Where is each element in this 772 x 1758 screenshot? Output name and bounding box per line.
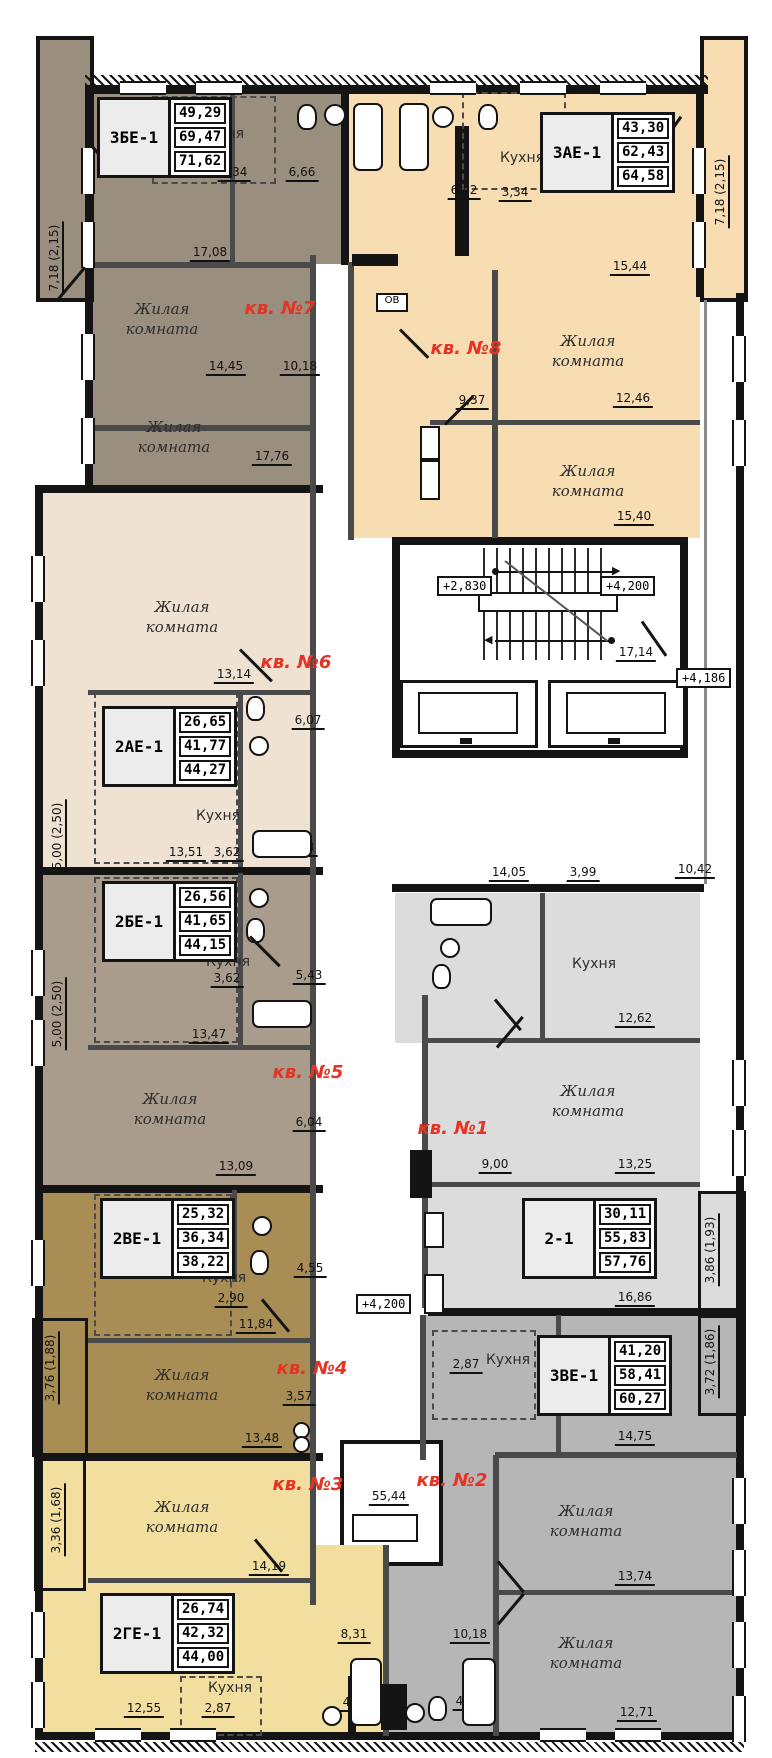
- balcony-dimension-label: 3,86 (1,93): [704, 1214, 720, 1287]
- room-label-living: Жилая комната: [538, 1634, 634, 1673]
- balcony-dimension-label: 7,18 (2,15): [48, 222, 64, 295]
- window: [430, 81, 476, 95]
- area-value: 64,58: [617, 166, 669, 187]
- dimension-label: 3,62: [211, 846, 244, 862]
- dimension-label: 9,00: [479, 1158, 512, 1174]
- kitchen-zone: [432, 1330, 536, 1420]
- toilet-icon: [432, 964, 451, 989]
- apartment-type-card: 2ВЕ-1 25,32 36,34 38,22: [100, 1198, 235, 1279]
- balcony-dimension-label: 5,00 (2,50): [51, 800, 67, 873]
- apartment-type-card: 2АЕ-1 26,65 41,77 44,27: [102, 706, 237, 787]
- window: [31, 1612, 45, 1658]
- partition: [88, 262, 316, 268]
- window: [540, 1728, 586, 1742]
- dimension-label: 3,57: [283, 1390, 316, 1406]
- partition: [430, 420, 492, 425]
- unit-label-5: кв. №5: [273, 1062, 344, 1083]
- partition: [492, 270, 498, 538]
- room-label-living: Жилая комната: [134, 1498, 230, 1537]
- elevator-car: [566, 692, 666, 734]
- stair-walkline: [495, 571, 615, 573]
- toilet-icon: [250, 1250, 269, 1275]
- window: [732, 1130, 746, 1176]
- apartment-type-card: 3БЕ-1 49,29 69,47 71,62: [97, 97, 232, 178]
- room-label-living: Жилая комната: [540, 462, 636, 501]
- room-label-kitchen: Кухня: [208, 1680, 252, 1696]
- wall: [392, 884, 704, 892]
- area-value: 42,32: [177, 1623, 229, 1644]
- dimension-label: 17,08: [190, 246, 230, 262]
- window: [732, 1478, 746, 1524]
- partition: [495, 1452, 737, 1458]
- dimension-label: 3,99: [567, 866, 600, 882]
- window: [520, 81, 566, 95]
- balcony-dimension-label: 3,72 (1,86): [704, 1326, 720, 1399]
- dimension-label: 6,07: [292, 714, 325, 730]
- unit-label-7: кв. №7: [245, 298, 316, 319]
- dimension-label: 14,45: [206, 360, 246, 376]
- window: [31, 556, 45, 602]
- area-value: 57,76: [599, 1252, 651, 1273]
- sink-icon: [405, 1703, 425, 1723]
- partition: [88, 1578, 316, 1583]
- apartment-type-label: 3БЕ-1: [100, 100, 171, 175]
- dimension-label: 13,47: [189, 1028, 229, 1044]
- room-label-living: Жилая комната: [134, 598, 230, 637]
- stair-walkline-start: [608, 637, 615, 644]
- wall: [428, 1308, 744, 1316]
- arrow-down-icon: ◀: [484, 635, 492, 645]
- toilet-icon: [428, 1696, 447, 1721]
- balcony-dimension-label: 7,18 (2,15): [714, 156, 730, 229]
- room-label-living: Жилая комната: [114, 300, 210, 339]
- dimension-label: 2,87: [450, 1358, 483, 1374]
- window: [732, 1622, 746, 1668]
- elevator-door: [460, 738, 472, 744]
- dimension-label: 2,90: [215, 1292, 248, 1308]
- apartment-type-label: 2БЕ-1: [105, 884, 176, 959]
- dimension-label: 12,46: [613, 392, 653, 408]
- area-value: 58,41: [614, 1365, 666, 1386]
- bathtub-icon: [353, 103, 383, 171]
- sink-icon: [252, 1216, 272, 1236]
- partition: [88, 1045, 316, 1050]
- unit-label-3: кв. №3: [273, 1474, 344, 1495]
- window: [31, 1682, 45, 1728]
- area-value: 71,62: [174, 151, 226, 172]
- area-value: 44,00: [177, 1647, 229, 1668]
- area-value: 43,30: [617, 118, 669, 139]
- balcony-dimension-label: 3,76 (1,88): [44, 1332, 60, 1405]
- dimension-label: 2,87: [202, 1702, 235, 1718]
- window: [615, 1728, 661, 1742]
- dimension-label: 6,42: [448, 184, 481, 200]
- dimension-label: 12,55: [124, 1702, 164, 1718]
- partition: [540, 893, 545, 1038]
- dimension-label: 12,71: [617, 1706, 657, 1722]
- shaft-box: [420, 460, 440, 500]
- bathtub-icon: [430, 898, 492, 926]
- area-value: 41,77: [179, 736, 231, 757]
- balcony-dimension-label: 5,00 (2,50): [51, 978, 67, 1051]
- window: [732, 1550, 746, 1596]
- dimension-label: 13,25: [615, 1158, 655, 1174]
- dimension-label: 55,44: [369, 1490, 409, 1506]
- area-value: 60,27: [614, 1389, 666, 1410]
- dimension-label: 10,18: [450, 1628, 490, 1644]
- window: [81, 148, 95, 194]
- dimension-label: 17,76: [252, 450, 292, 466]
- area-value: 30,11: [599, 1204, 651, 1225]
- sink-icon: [432, 106, 454, 128]
- window: [692, 148, 706, 194]
- apartment-type-card: 2ГЕ-1 26,74 42,32 44,00: [100, 1593, 235, 1674]
- level-mark: +2,830: [437, 576, 492, 596]
- partition: [420, 1315, 426, 1460]
- area-value: 26,74: [177, 1599, 229, 1620]
- arrow-up-icon: ▶: [612, 566, 620, 576]
- dimension-label: 5,43: [293, 969, 326, 985]
- wall: [35, 1453, 323, 1461]
- shaft-box: [424, 1212, 444, 1248]
- dimension-label: 10,18: [280, 360, 320, 376]
- bathtub-icon: [252, 1000, 312, 1028]
- window: [95, 1728, 141, 1742]
- dimension-label: 6,66: [286, 166, 319, 182]
- dimension-label: 12,62: [615, 1012, 655, 1028]
- window: [196, 81, 242, 95]
- area-value: 49,29: [174, 103, 226, 124]
- room-label-kitchen: Кухня: [196, 808, 240, 824]
- sink-icon: [322, 1706, 342, 1726]
- wall-stair-core: [392, 537, 400, 758]
- area-value: 44,27: [179, 760, 231, 781]
- window: [120, 81, 166, 95]
- dimension-label: 8,31: [338, 1628, 371, 1644]
- bathtub-icon: [350, 1658, 382, 1726]
- dimension-label: 11,84: [236, 1318, 276, 1334]
- partition: [492, 420, 700, 425]
- window: [732, 1696, 746, 1742]
- area-value: 41,65: [179, 911, 231, 932]
- partition: [428, 1038, 700, 1043]
- dimension-label: 15,44: [610, 260, 650, 276]
- apartment-type-label: 2-1: [525, 1201, 596, 1276]
- shaft-block: [381, 1684, 407, 1730]
- unit-label-4: кв. №4: [277, 1358, 348, 1379]
- toilet-icon: [478, 104, 498, 130]
- level-mark: +4,186: [676, 668, 731, 688]
- wall-insulation: [35, 1742, 744, 1752]
- area-value: 26,56: [179, 887, 231, 908]
- apartment-type-card: 2БЕ-1 26,56 41,65 44,15: [102, 881, 237, 962]
- sink-icon: [324, 104, 346, 126]
- window: [732, 336, 746, 382]
- dimension-label: 15,40: [614, 510, 654, 526]
- shaft-symbol: [293, 1436, 310, 1453]
- area-value: 38,22: [177, 1252, 229, 1273]
- area-value: 36,34: [177, 1228, 229, 1249]
- dimension-label: 6,04: [293, 1116, 326, 1132]
- level-mark: +4,200: [356, 1294, 411, 1314]
- dimension-label: 14,75: [615, 1430, 655, 1446]
- apartment-type-card: 2-1 30,11 55,83 57,76: [522, 1198, 657, 1279]
- area-value: 25,32: [177, 1204, 229, 1225]
- area-value: 69,47: [174, 127, 226, 148]
- sink-icon: [440, 938, 460, 958]
- shaft-box: [420, 426, 440, 460]
- dimension-label: 13,51: [166, 846, 206, 862]
- wall: [35, 485, 323, 493]
- bathtub-icon: [252, 830, 312, 858]
- room-label-living: Жилая комната: [134, 1366, 230, 1405]
- bathtub-icon: [462, 1658, 496, 1726]
- unit-label-2: кв. №2: [417, 1470, 488, 1491]
- shaft-block: [352, 254, 398, 266]
- apartment-type-label: 2ГЕ-1: [103, 1596, 174, 1671]
- apartment-type-label: 3ВЕ-1: [540, 1338, 611, 1413]
- gallery-rail: [704, 300, 707, 884]
- apartment-type-label: 2АЕ-1: [105, 709, 176, 784]
- partition: [428, 1182, 700, 1187]
- dimension-label: 13,48: [242, 1432, 282, 1448]
- sink-icon: [249, 736, 269, 756]
- room-label-living: Жилая комната: [126, 418, 222, 457]
- elevator-door: [608, 738, 620, 744]
- dimension-label: 3,34: [499, 186, 532, 202]
- window: [600, 81, 646, 95]
- window: [31, 1240, 45, 1286]
- room-label-living: Жилая комната: [122, 1090, 218, 1129]
- window: [31, 640, 45, 686]
- unit-label-6: кв. №6: [261, 652, 332, 673]
- dimension-label: 13,14: [214, 668, 254, 684]
- room-label-kitchen: Кухня: [572, 956, 616, 972]
- wall-stair-core: [392, 537, 688, 545]
- area-value: 41,20: [614, 1341, 666, 1362]
- shaft-pk-box: [352, 1514, 418, 1542]
- bathtub-icon: [399, 103, 429, 171]
- dimension-label: 14,05: [489, 866, 529, 882]
- window: [81, 334, 95, 380]
- dimension-label: 13,09: [216, 1160, 256, 1176]
- dimension-label: 10,42: [675, 863, 715, 879]
- shaft-block: [410, 1150, 432, 1198]
- window: [732, 1060, 746, 1106]
- toilet-icon: [246, 696, 265, 721]
- shaft-ov-box: ОВ: [376, 293, 408, 312]
- shaft-box: [424, 1274, 444, 1314]
- room-label-living: Жилая комната: [540, 332, 636, 371]
- area-value: 26,65: [179, 712, 231, 733]
- balcony-dimension-label: 3,36 (1,68): [50, 1484, 66, 1557]
- room-label-living: Жилая комната: [538, 1502, 634, 1541]
- area-value: 55,83: [599, 1228, 651, 1249]
- floor-plan: ▶ ◀ 3БЕ-1 49,29 69,47 71,62 3АЕ-1 43,: [0, 0, 772, 1758]
- room-label-kitchen: Кухня: [500, 150, 544, 166]
- dimension-label: 4,55: [294, 1262, 327, 1278]
- unit-label-1: кв. №1: [418, 1118, 489, 1139]
- window: [31, 950, 45, 996]
- level-mark: +4,200: [600, 576, 655, 596]
- window: [81, 222, 95, 268]
- wall: [35, 1185, 323, 1193]
- window: [31, 1020, 45, 1066]
- room-label-kitchen: Кухня: [486, 1352, 530, 1368]
- apartment-type-card: 3ВЕ-1 41,20 58,41 60,27: [537, 1335, 672, 1416]
- dimension-label: 14,19: [249, 1560, 289, 1576]
- elevator-car: [418, 692, 518, 734]
- partition: [238, 690, 243, 867]
- partition: [88, 1338, 316, 1343]
- apartment-type-label: 2ВЕ-1: [103, 1201, 174, 1276]
- dimension-label: 17,14: [616, 646, 656, 662]
- stair-walkline: [495, 640, 615, 642]
- window: [692, 222, 706, 268]
- corridor-wall: [348, 262, 354, 540]
- wall: [35, 867, 323, 875]
- toilet-icon: [297, 104, 317, 130]
- apartment-type-label: 3АЕ-1: [543, 115, 614, 190]
- dimension-label: 16,86: [615, 1291, 655, 1307]
- wall-stair-core: [392, 750, 688, 758]
- area-value: 62,43: [617, 142, 669, 163]
- stair-walkline-start: [492, 568, 499, 575]
- window: [170, 1728, 216, 1742]
- dimension-label: 3,62: [211, 972, 244, 988]
- window: [732, 420, 746, 466]
- apartment-type-card: 3АЕ-1 43,30 62,43 64,58: [540, 112, 675, 193]
- partition: [499, 1590, 737, 1595]
- sink-icon: [249, 888, 269, 908]
- area-value: 44,15: [179, 935, 231, 956]
- window: [81, 418, 95, 464]
- room-label-living: Жилая комната: [540, 1082, 636, 1121]
- dimension-label: 13,74: [615, 1570, 655, 1586]
- unit-label-8: кв. №8: [431, 338, 502, 359]
